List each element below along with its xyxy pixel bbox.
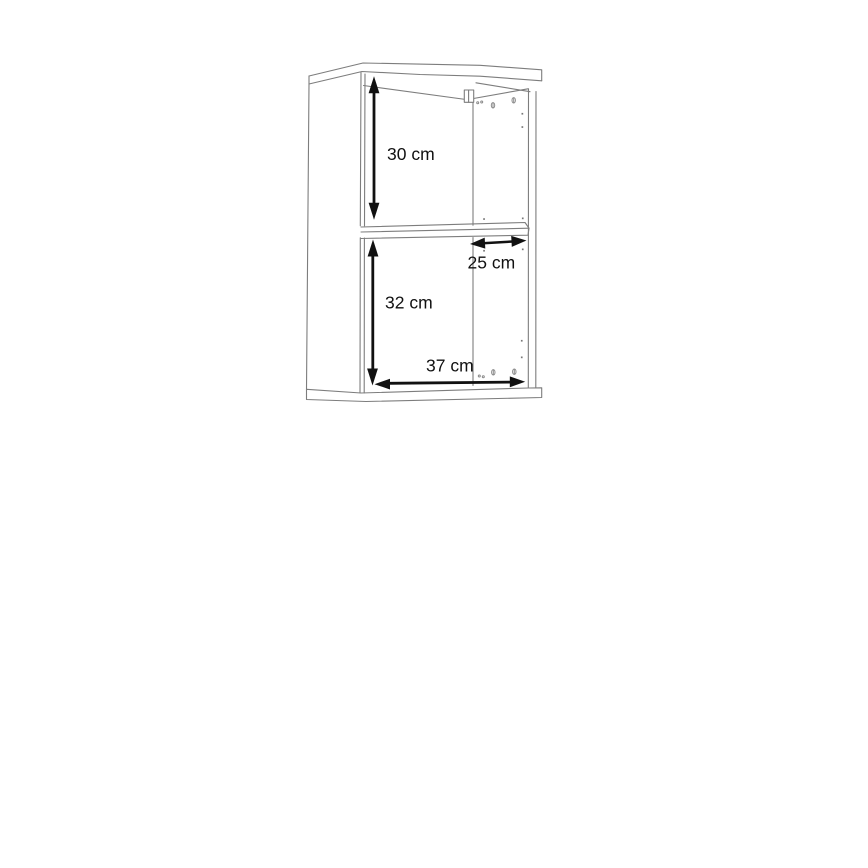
screw-hole <box>492 370 495 375</box>
bottom-panel <box>307 388 542 402</box>
dimension-arrow-37cm <box>375 376 526 389</box>
dimension-arrow-30cm <box>369 76 380 219</box>
screw-hole <box>512 98 515 103</box>
screw-hole <box>513 369 516 374</box>
dimension-label-37cm: 37 cm <box>426 356 474 376</box>
dimension-label-32cm: 32 cm <box>385 293 433 313</box>
top-panel <box>309 63 542 84</box>
wall-bracket <box>464 90 473 102</box>
dimension-arrow-32cm <box>367 240 378 386</box>
pin-hole <box>478 375 480 377</box>
screw-hole <box>491 103 494 108</box>
left-side-panel <box>307 73 366 393</box>
pin-hole <box>477 102 479 104</box>
pin-hole <box>482 376 484 378</box>
dimension-arrow-25cm <box>470 236 527 249</box>
middle-shelf <box>361 223 529 239</box>
dimension-label-30cm: 30 cm <box>387 144 435 164</box>
cabinet-dimension-drawing: 30 cm 25 cm 32 cm 37 cm <box>0 0 868 868</box>
dimension-label-25cm: 25 cm <box>468 252 516 272</box>
pin-hole <box>481 101 483 103</box>
drawing-canvas: 30 cm 25 cm 32 cm 37 cm <box>0 0 868 868</box>
